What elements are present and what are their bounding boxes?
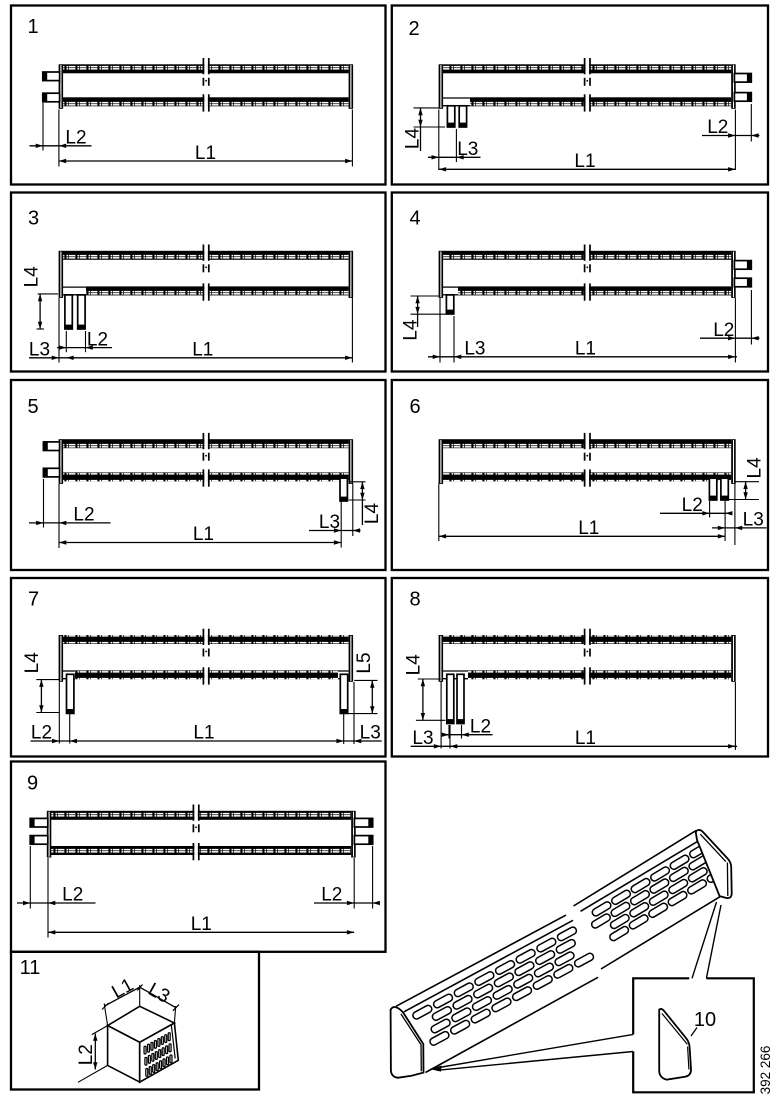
svg-text:L3: L3 bbox=[412, 728, 433, 749]
svg-text:L2: L2 bbox=[707, 117, 728, 138]
svg-text:1: 1 bbox=[27, 16, 38, 38]
svg-text:L4: L4 bbox=[401, 319, 422, 341]
svg-text:L2: L2 bbox=[470, 716, 491, 737]
svg-text:L1: L1 bbox=[578, 518, 599, 539]
svg-text:7: 7 bbox=[28, 589, 39, 611]
svg-text:L1: L1 bbox=[575, 728, 596, 749]
svg-text:L4: L4 bbox=[745, 457, 766, 479]
svg-text:L2: L2 bbox=[62, 885, 83, 906]
svg-text:392 266: 392 266 bbox=[758, 1046, 773, 1095]
svg-text:L3: L3 bbox=[743, 510, 764, 531]
svg-text:L3: L3 bbox=[29, 340, 50, 361]
svg-text:L1: L1 bbox=[191, 914, 212, 935]
svg-text:L4: L4 bbox=[21, 266, 42, 288]
svg-text:11: 11 bbox=[20, 957, 41, 979]
svg-text:L2: L2 bbox=[73, 505, 94, 526]
svg-text:L2: L2 bbox=[31, 723, 52, 744]
svg-text:L1: L1 bbox=[195, 143, 216, 164]
svg-text:L3: L3 bbox=[464, 338, 485, 359]
svg-text:4: 4 bbox=[409, 208, 420, 230]
svg-text:L4: L4 bbox=[403, 654, 424, 676]
svg-text:L1: L1 bbox=[575, 338, 596, 359]
svg-text:L1: L1 bbox=[574, 151, 595, 172]
svg-text:L3: L3 bbox=[319, 512, 340, 533]
svg-text:L2: L2 bbox=[76, 1044, 97, 1065]
svg-text:L1: L1 bbox=[193, 524, 214, 545]
svg-text:L1: L1 bbox=[193, 723, 214, 744]
svg-text:L2: L2 bbox=[87, 329, 108, 350]
svg-text:8: 8 bbox=[409, 589, 420, 611]
svg-text:9: 9 bbox=[27, 773, 38, 795]
svg-text:5: 5 bbox=[27, 396, 38, 418]
svg-text:L5: L5 bbox=[354, 652, 375, 673]
svg-text:L3: L3 bbox=[360, 723, 381, 744]
svg-text:L2: L2 bbox=[321, 885, 342, 906]
svg-text:3: 3 bbox=[28, 208, 39, 230]
svg-text:L3: L3 bbox=[457, 139, 478, 160]
svg-text:L2: L2 bbox=[682, 495, 703, 516]
svg-text:L4: L4 bbox=[22, 652, 43, 674]
svg-text:6: 6 bbox=[409, 396, 420, 418]
svg-text:L2: L2 bbox=[713, 320, 734, 341]
svg-text:L4: L4 bbox=[402, 128, 423, 150]
svg-text:L2: L2 bbox=[65, 128, 86, 149]
svg-text:2: 2 bbox=[408, 18, 419, 40]
svg-text:L1: L1 bbox=[192, 340, 213, 361]
svg-text:L4: L4 bbox=[362, 503, 383, 525]
